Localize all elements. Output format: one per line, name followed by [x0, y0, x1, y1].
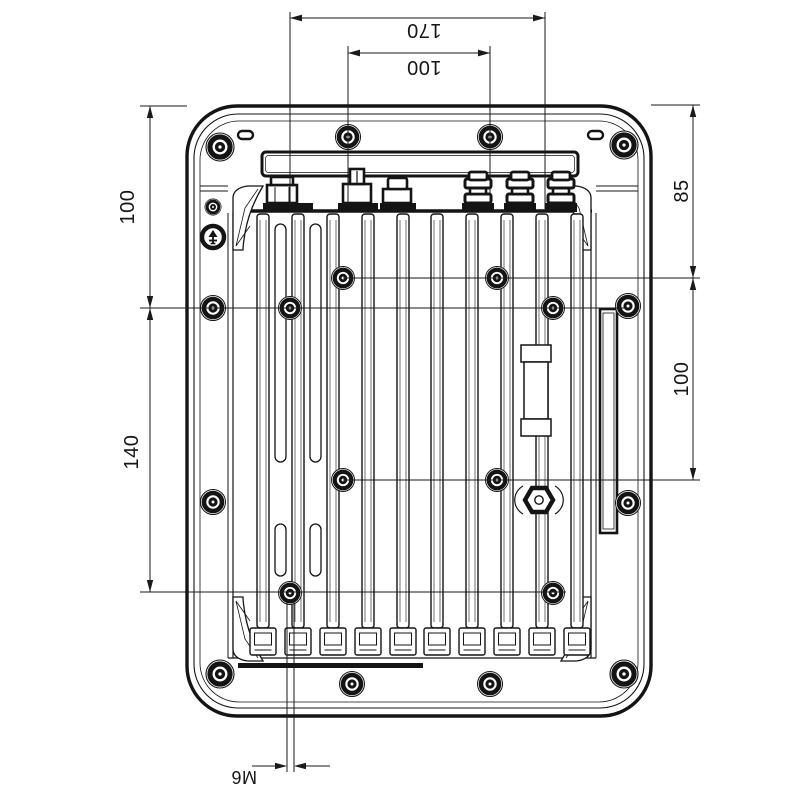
screw: [279, 582, 302, 605]
fin: [355, 214, 381, 655]
dim-label-top-inner: 100: [407, 56, 442, 78]
cable-clamp-slot: [521, 345, 551, 436]
dim-label-top-outer: 170: [407, 19, 442, 41]
dim-label-left-lower: 140: [121, 435, 143, 470]
fin: [459, 214, 485, 655]
screw: [616, 491, 641, 516]
screw: [205, 199, 221, 215]
hex-gland-nut-icon: [515, 486, 564, 514]
side-bracket-bar: [600, 309, 617, 533]
screw: [610, 660, 638, 688]
fin: [424, 214, 450, 655]
screw: [478, 672, 503, 697]
screw: [610, 131, 638, 159]
screw: [201, 490, 226, 515]
fin: [250, 214, 276, 655]
dim-label-thread-callout: M6: [231, 767, 257, 787]
technical-drawing-canvas: 170 100 100 140 85 100 M6: [0, 0, 800, 800]
dim-top-inner: [348, 50, 490, 57]
dim-thread-callout: [252, 763, 330, 769]
dim-left-chain: [147, 106, 153, 592]
screw: [206, 133, 234, 161]
screw: [340, 672, 365, 697]
screw: [542, 582, 565, 605]
screw: [616, 294, 641, 319]
dimension-drawing: 170 100 100 140 85 100 M6: [0, 0, 800, 800]
bottom-gasket-bar: [238, 663, 423, 668]
antenna-connector: [462, 172, 494, 212]
dim-label-right-upper: 85: [671, 179, 693, 202]
terminal-connector: [263, 177, 313, 211]
capped-connector: [380, 178, 416, 211]
fin: [390, 214, 416, 655]
top-slot-openings: [238, 131, 603, 139]
dim-label-right-lower: 100: [671, 362, 693, 397]
dim-label-left-upper: 100: [117, 190, 139, 225]
dim-right-chain: [690, 105, 696, 480]
antenna-connector: [504, 172, 536, 212]
screw: [206, 660, 234, 688]
ground-terminal-icon: [202, 226, 224, 248]
mounting-rail: [262, 152, 578, 176]
fin: [564, 214, 590, 655]
